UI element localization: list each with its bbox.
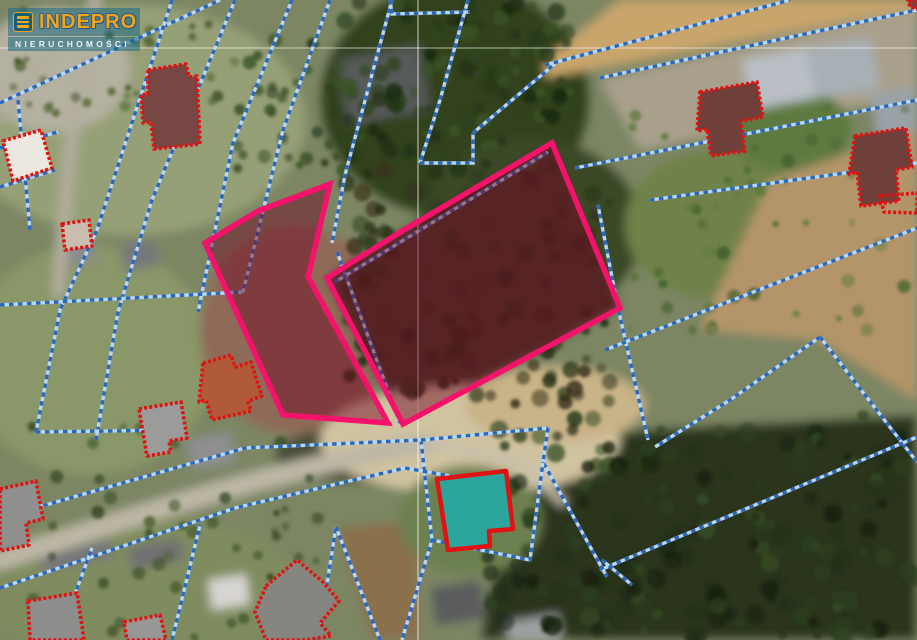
tree-blob xyxy=(644,494,655,505)
tree-blob xyxy=(751,513,760,522)
tree-blob xyxy=(743,166,751,174)
tree-blob xyxy=(266,86,278,98)
tree-blob xyxy=(230,57,240,67)
tree-blob xyxy=(581,586,597,602)
tree-blob xyxy=(98,577,109,588)
tree-blob xyxy=(641,442,655,456)
tree-blob xyxy=(481,140,493,152)
tree-blob xyxy=(493,10,508,25)
tree-blob xyxy=(387,57,401,71)
tree-blob xyxy=(499,75,510,86)
tree-blob xyxy=(189,23,195,29)
tree-blob xyxy=(469,48,486,65)
tree-blob xyxy=(232,544,240,552)
tree-blob xyxy=(830,137,842,149)
tree-blob xyxy=(426,30,442,46)
logo-tagline-text: NIERUCHOMOŚCI xyxy=(8,37,140,51)
tree-blob xyxy=(567,424,578,435)
tree-blob xyxy=(389,98,405,114)
tree-blob xyxy=(535,87,546,98)
tree-blob xyxy=(425,105,433,113)
tree-blob xyxy=(804,597,817,610)
tree-blob xyxy=(628,123,637,132)
tree-blob xyxy=(761,580,780,599)
tree-blob xyxy=(254,551,263,560)
tree-blob xyxy=(652,609,663,620)
tree-blob xyxy=(528,359,540,371)
tree-blob xyxy=(748,539,759,550)
tree-blob xyxy=(378,134,391,147)
tree-blob xyxy=(243,56,257,70)
tree-blob xyxy=(697,219,707,229)
tree-blob xyxy=(48,553,56,561)
tree-blob xyxy=(897,280,910,293)
tree-blob xyxy=(312,512,324,524)
tree-blob xyxy=(144,516,156,528)
tree-blob xyxy=(861,521,878,538)
tree-blob xyxy=(557,387,571,401)
tree-blob xyxy=(375,204,386,215)
tree-blob xyxy=(734,191,741,198)
logo-icon-bar xyxy=(17,21,29,24)
tree-blob xyxy=(481,77,499,95)
tree-blob xyxy=(779,435,795,451)
tree-blob xyxy=(658,484,669,495)
tree-blob xyxy=(716,246,730,260)
tree-blob xyxy=(108,87,116,95)
tree-blob xyxy=(549,584,567,602)
tree-blob xyxy=(124,92,131,99)
tree-blob xyxy=(831,590,847,606)
tree-blob xyxy=(132,567,145,580)
tree-blob xyxy=(602,441,615,454)
tree-blob xyxy=(867,478,884,495)
tree-blob xyxy=(551,89,568,106)
terrain-patch xyxy=(430,580,486,626)
tree-blob xyxy=(861,323,874,336)
tree-blob xyxy=(104,491,117,504)
tree-blob xyxy=(219,492,231,504)
logo-band: INDEPRO xyxy=(8,8,140,36)
indepro-logo: INDEPRO NIERUCHOMOŚCI xyxy=(8,8,140,51)
tree-blob xyxy=(525,575,539,589)
tree-blob xyxy=(859,547,869,557)
logo-icon-bar xyxy=(17,25,29,28)
tree-blob xyxy=(406,184,423,201)
tree-blob xyxy=(359,65,370,76)
tree-blob xyxy=(630,110,642,122)
tree-blob xyxy=(71,92,81,102)
tree-blob xyxy=(824,104,832,112)
tree-blob xyxy=(598,576,614,592)
tree-blob xyxy=(582,461,595,474)
tree-blob xyxy=(26,101,33,108)
tree-blob xyxy=(82,98,91,107)
tree-blob xyxy=(852,305,864,317)
tree-blob xyxy=(493,583,512,602)
tree-blob xyxy=(512,474,528,490)
tree-blob xyxy=(613,515,626,528)
tree-blob xyxy=(342,114,354,126)
tree-blob xyxy=(689,327,697,335)
tree-blob xyxy=(778,596,792,610)
tree-blob xyxy=(170,581,182,593)
tree-blob xyxy=(572,389,584,401)
tree-blob xyxy=(810,541,820,551)
tree-blob xyxy=(545,370,557,382)
tree-blob xyxy=(556,77,566,87)
tree-blob xyxy=(878,498,888,508)
indepro-logo-icon xyxy=(13,12,33,32)
tree-blob xyxy=(145,37,156,48)
tree-blob xyxy=(335,60,347,72)
tree-blob xyxy=(602,374,618,390)
tree-blob xyxy=(578,365,591,378)
logo-brand-text: INDEPRO xyxy=(39,11,137,33)
tree-blob xyxy=(497,136,507,146)
tree-blob xyxy=(654,267,664,277)
tree-blob xyxy=(258,150,271,163)
tree-blob xyxy=(9,83,17,91)
tree-blob xyxy=(429,166,443,180)
tree-blob xyxy=(528,29,545,46)
tree-blob xyxy=(706,583,724,601)
tree-blob xyxy=(746,605,765,624)
tree-blob xyxy=(662,445,679,462)
tree-blob xyxy=(364,222,375,233)
tree-blob xyxy=(803,219,810,226)
tree-blob xyxy=(656,426,666,436)
tree-blob xyxy=(281,506,289,514)
tree-blob xyxy=(364,169,373,178)
tree-blob xyxy=(485,390,496,401)
tree-blob xyxy=(552,431,562,441)
tree-blob xyxy=(890,488,898,496)
tree-blob xyxy=(296,162,303,169)
tree-blob xyxy=(697,470,712,485)
tree-blob xyxy=(894,458,912,476)
tree-blob xyxy=(50,470,63,483)
tree-blob xyxy=(546,444,565,463)
tree-blob xyxy=(591,622,606,637)
tree-blob xyxy=(500,441,510,451)
tree-blob xyxy=(559,24,575,40)
tree-blob xyxy=(781,154,794,167)
tree-blob xyxy=(771,525,790,544)
tree-blob xyxy=(422,64,435,77)
tree-blob xyxy=(791,456,808,473)
tree-blob xyxy=(152,557,165,570)
tree-blob xyxy=(772,221,778,227)
tree-blob xyxy=(738,423,758,443)
tree-blob xyxy=(824,505,842,523)
tree-blob xyxy=(511,67,520,76)
tree-blob xyxy=(512,574,526,588)
tree-blob xyxy=(661,133,668,140)
tree-blob xyxy=(528,2,537,11)
tree-blob xyxy=(385,84,403,102)
tree-blob xyxy=(772,545,786,559)
tree-blob xyxy=(206,73,215,82)
tree-blob xyxy=(881,467,893,479)
tree-blob xyxy=(510,29,520,39)
tree-blob xyxy=(305,474,314,483)
tree-blob xyxy=(568,536,584,552)
tree-blob xyxy=(686,604,701,619)
tree-blob xyxy=(375,162,392,179)
tree-blob xyxy=(386,118,398,130)
tree-blob xyxy=(724,177,730,183)
tree-blob xyxy=(368,124,380,136)
logo-icon-bar xyxy=(17,16,29,19)
tree-blob xyxy=(516,371,530,385)
tree-blob xyxy=(627,327,633,333)
tree-blob xyxy=(233,164,242,173)
tree-blob xyxy=(482,159,491,168)
tree-blob xyxy=(532,390,549,407)
tree-blob xyxy=(752,145,759,152)
tree-blob xyxy=(336,81,344,89)
tree-blob xyxy=(490,421,508,439)
tree-blob xyxy=(371,92,386,107)
tree-blob xyxy=(91,506,104,519)
tree-blob xyxy=(473,102,484,113)
tree-blob xyxy=(691,516,699,524)
tree-blob xyxy=(326,85,333,92)
tree-blob xyxy=(836,315,842,321)
tree-blob xyxy=(871,503,879,511)
tree-blob xyxy=(581,569,598,586)
tree-blob xyxy=(540,615,555,630)
tree-blob xyxy=(713,425,726,438)
tree-blob xyxy=(353,184,371,202)
tree-blob xyxy=(208,97,217,106)
tree-blob xyxy=(808,616,819,627)
aerial-map[interactable] xyxy=(0,0,917,640)
tree-blob xyxy=(434,21,444,31)
tree-blob xyxy=(517,104,527,114)
tree-blob xyxy=(414,106,426,118)
tree-blob xyxy=(710,598,726,614)
tree-blob xyxy=(312,126,323,137)
tree-blob xyxy=(635,565,645,575)
tree-blob xyxy=(426,53,434,61)
tree-blob xyxy=(281,522,289,530)
tree-blob xyxy=(635,598,652,615)
tree-blob xyxy=(813,565,830,582)
tree-blob xyxy=(562,361,579,378)
tree-blob xyxy=(816,439,825,448)
tree-blob xyxy=(605,199,613,207)
tree-blob xyxy=(778,631,787,640)
tree-blob xyxy=(125,85,131,91)
tree-blob xyxy=(238,150,247,159)
tree-blob xyxy=(579,478,592,491)
tree-blob xyxy=(813,631,822,640)
tree-blob xyxy=(120,101,131,112)
building-outline-small-square-left xyxy=(62,220,92,250)
tree-blob xyxy=(334,108,340,114)
tree-blob xyxy=(441,54,450,63)
tree-blob xyxy=(204,20,212,28)
tree-blob xyxy=(459,111,474,126)
tree-blob xyxy=(168,499,180,511)
tree-blob xyxy=(831,527,844,540)
tree-blob xyxy=(697,493,709,505)
tree-blob xyxy=(849,219,856,226)
tree-blob xyxy=(427,149,439,161)
tree-blob xyxy=(133,90,140,97)
tree-blob xyxy=(497,88,510,101)
tree-blob xyxy=(44,103,54,113)
tree-blob xyxy=(548,3,566,21)
tree-blob xyxy=(806,133,819,146)
tree-blob xyxy=(686,205,694,213)
tree-blob xyxy=(325,139,335,149)
tree-blob xyxy=(267,574,274,581)
tree-blob xyxy=(94,474,104,484)
tree-blob xyxy=(584,185,602,203)
map-viewport[interactable]: INDEPRO NIERUCHOMOŚCI xyxy=(0,0,917,640)
tree-blob xyxy=(722,469,731,478)
tree-blob xyxy=(710,320,716,326)
tree-blob xyxy=(227,618,237,628)
tree-blob xyxy=(271,528,278,535)
tree-blob xyxy=(841,274,855,288)
tree-blob xyxy=(537,584,550,597)
tree-blob xyxy=(188,33,196,41)
tree-blob xyxy=(646,573,658,585)
tree-blob xyxy=(688,446,702,460)
tree-blob xyxy=(851,505,859,513)
tree-blob xyxy=(658,280,667,289)
terrain-patch xyxy=(806,38,880,98)
tree-blob xyxy=(901,105,910,114)
tree-blob xyxy=(818,543,836,561)
tree-blob xyxy=(664,551,682,569)
tree-blob xyxy=(403,144,418,159)
tree-blob xyxy=(704,246,716,258)
tree-blob xyxy=(107,625,118,636)
tree-blob xyxy=(285,153,293,161)
tree-blob xyxy=(449,125,461,137)
tree-blob xyxy=(321,159,329,167)
tree-blob xyxy=(658,499,674,515)
tree-blob xyxy=(554,547,571,564)
tree-blob xyxy=(519,13,529,23)
tree-blob xyxy=(332,152,339,159)
building-outline-house-bottom-left xyxy=(28,593,84,640)
tree-blob xyxy=(618,600,633,615)
terrain-patch xyxy=(208,574,250,610)
tree-blob xyxy=(612,464,625,477)
tree-blob xyxy=(264,104,276,116)
tree-blob xyxy=(713,203,719,209)
tree-blob xyxy=(566,575,581,590)
tree-blob xyxy=(281,87,290,96)
tree-blob xyxy=(640,626,648,634)
tree-blob xyxy=(806,493,817,504)
tree-blob xyxy=(830,562,844,576)
tree-blob xyxy=(603,395,615,407)
tree-blob xyxy=(661,302,673,314)
tree-blob xyxy=(585,411,601,427)
tree-blob xyxy=(578,497,589,508)
tree-blob xyxy=(337,12,354,29)
tree-blob xyxy=(274,510,280,516)
tree-blob xyxy=(594,473,607,486)
tree-blob xyxy=(857,410,869,422)
tree-blob xyxy=(510,399,520,409)
tree-blob xyxy=(630,273,639,282)
tree-blob xyxy=(582,355,591,364)
tree-blob xyxy=(567,411,583,427)
tree-blob xyxy=(483,565,499,581)
tree-blob xyxy=(597,363,607,373)
tree-blob xyxy=(545,109,560,124)
tree-blob xyxy=(875,548,894,567)
tree-blob xyxy=(14,57,21,64)
tree-blob xyxy=(312,557,319,564)
tree-blob xyxy=(735,618,745,628)
tree-blob xyxy=(496,613,514,631)
tree-blob xyxy=(238,613,249,624)
tree-blob xyxy=(52,109,60,117)
tree-blob xyxy=(793,310,800,317)
tree-blob xyxy=(460,26,477,43)
tree-blob xyxy=(473,70,482,79)
tree-blob xyxy=(755,482,764,491)
tree-blob xyxy=(48,521,57,530)
tree-blob xyxy=(862,625,876,639)
tree-blob xyxy=(539,47,555,63)
